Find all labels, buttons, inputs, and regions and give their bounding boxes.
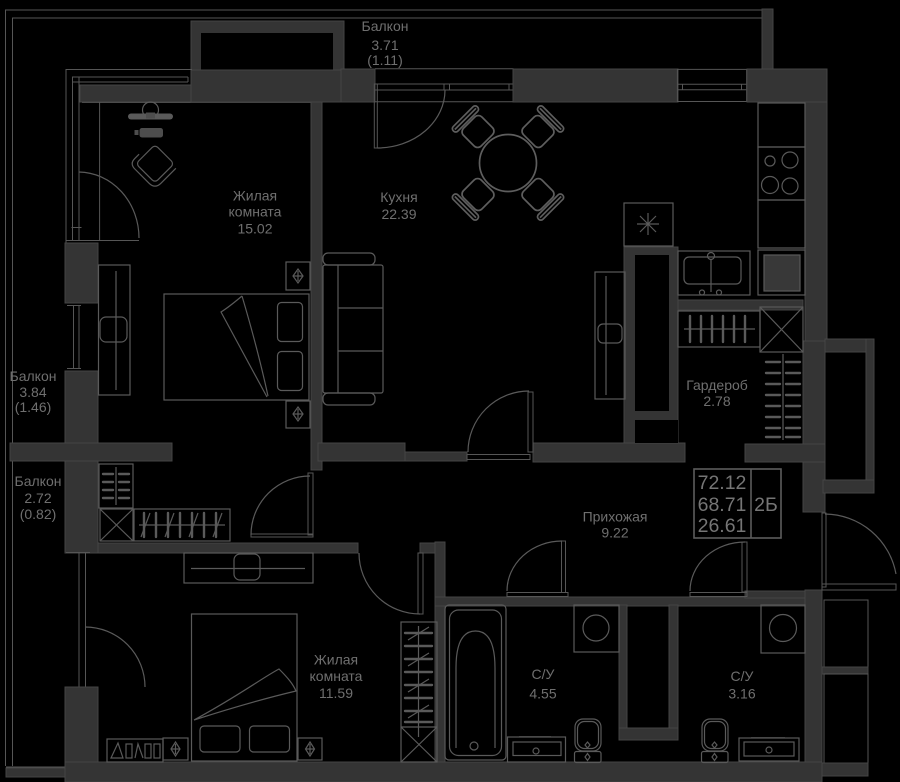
svg-text:4.55: 4.55 bbox=[529, 686, 556, 702]
svg-text:68.71: 68.71 bbox=[698, 494, 747, 516]
svg-text:3.16: 3.16 bbox=[728, 686, 755, 702]
svg-text:15.02: 15.02 bbox=[237, 221, 272, 237]
svg-text:9.22: 9.22 bbox=[601, 525, 628, 541]
svg-text:Жилая: Жилая bbox=[314, 652, 358, 668]
svg-text:2Б: 2Б bbox=[754, 494, 778, 516]
svg-text:Балкон: Балкон bbox=[362, 18, 409, 34]
svg-text:Балкон: Балкон bbox=[15, 473, 62, 489]
svg-text:Прихожая: Прихожая bbox=[583, 509, 648, 525]
svg-text:С/У: С/У bbox=[532, 666, 555, 682]
svg-text:Гардероб: Гардероб bbox=[686, 377, 748, 393]
svg-text:11.59: 11.59 bbox=[319, 685, 353, 701]
svg-text:комната: комната bbox=[310, 668, 363, 684]
svg-text:(1.46): (1.46) bbox=[15, 399, 52, 415]
svg-text:(0.82): (0.82) bbox=[20, 506, 57, 522]
svg-text:Кухня: Кухня bbox=[380, 189, 417, 205]
svg-text:Жилая: Жилая bbox=[233, 188, 277, 204]
svg-text:3.71: 3.71 bbox=[371, 37, 398, 53]
svg-text:(1.11): (1.11) bbox=[367, 52, 403, 68]
svg-text:С/У: С/У bbox=[731, 668, 754, 684]
svg-text:2.72: 2.72 bbox=[24, 490, 51, 506]
svg-text:Балкон: Балкон bbox=[10, 368, 57, 384]
svg-text:2.78: 2.78 bbox=[703, 393, 730, 409]
svg-text:26.61: 26.61 bbox=[698, 515, 747, 537]
svg-text:комната: комната bbox=[229, 204, 282, 220]
svg-text:3.84: 3.84 bbox=[19, 384, 46, 400]
svg-text:72.12: 72.12 bbox=[698, 472, 747, 494]
svg-text:22.39: 22.39 bbox=[381, 206, 416, 222]
